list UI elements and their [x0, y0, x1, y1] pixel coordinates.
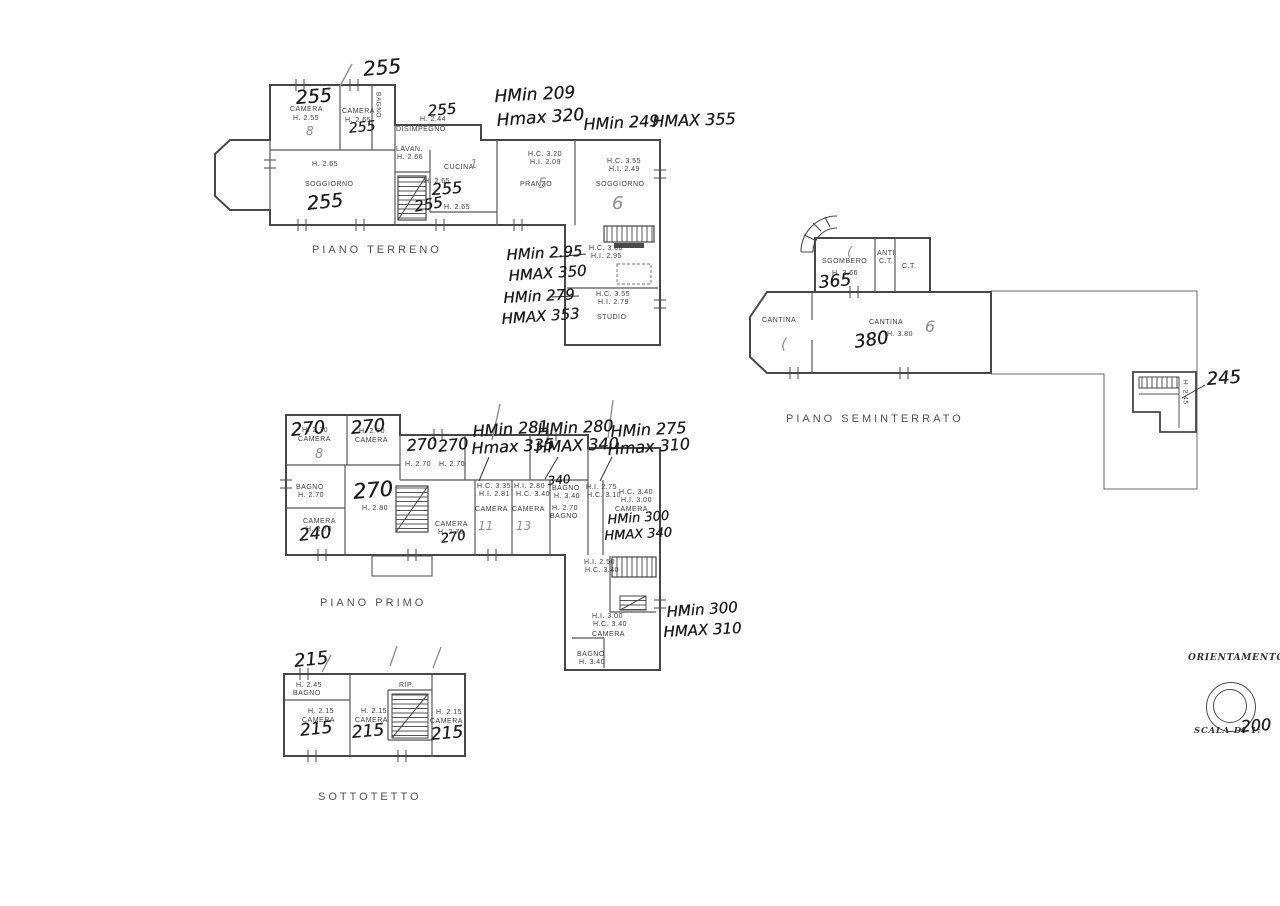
room-label: ANTI — [877, 250, 895, 258]
room-label: BAGNO — [293, 690, 321, 698]
handwritten-annotation: 215 — [299, 719, 333, 742]
room-label: C.T. — [879, 258, 893, 266]
handwritten-annotation: HMin 300 — [666, 599, 738, 621]
room-label: H.C. 3.55 — [596, 291, 630, 299]
room-label: H.I. 3.00 — [592, 613, 623, 621]
room-label: CANTINA — [869, 319, 903, 327]
handwritten-annotation: HMin 209 — [494, 84, 576, 108]
room-label: H. 3.40 — [579, 659, 605, 667]
room-label: CAMERA — [592, 631, 625, 639]
room-label: H.I. 2.95 — [591, 253, 622, 261]
handwritten-annotation: HMAX 350 — [508, 263, 587, 286]
room-label: H. 2.66 — [397, 154, 423, 162]
handwritten-annotation: HMAX 340 — [604, 526, 672, 544]
handwritten-annotation: 215 — [351, 721, 385, 743]
room-label: STUDIO — [597, 314, 626, 322]
room-label: C.T. — [902, 263, 916, 271]
room-label: H.I. 2.49 — [609, 166, 640, 174]
room-label: H.I. 2.09 — [530, 159, 561, 167]
room-label: H.C. 3.40 — [516, 491, 550, 499]
handwritten-annotation: 255 — [295, 85, 333, 109]
pencil-mark: 6 — [612, 194, 623, 215]
room-label: H. 2.70 — [405, 461, 431, 469]
handwritten-annotation: 215 — [430, 723, 464, 745]
room-label: H. 2.15 — [436, 709, 462, 717]
pencil-mark: 13 — [516, 520, 531, 534]
room-label: SOGGIORNO — [596, 181, 644, 189]
handwritten-annotation: 270 — [350, 416, 386, 440]
room-label: H.I. 2.80 — [514, 483, 545, 491]
handwritten-annotation: 240 — [298, 524, 332, 547]
room-label: H.I. 2.81 — [479, 491, 510, 499]
pencil-mark: ( — [847, 246, 852, 261]
room-label: H. 3.80 — [887, 331, 913, 339]
room-label: BAGNO — [550, 513, 578, 521]
handwritten-annotation: 255 — [306, 190, 344, 216]
room-label: H.C. 3.40 — [619, 489, 653, 497]
plan-title-piano-primo: PIANO PRIMO — [320, 597, 426, 610]
pencil-mark: 11 — [478, 520, 493, 534]
room-label: BAGNO — [577, 651, 605, 659]
handwritten-annotation: 270 — [440, 530, 467, 548]
handwritten-annotation: HMin 2.95 — [506, 243, 583, 264]
pencil-mark: 5 — [538, 176, 547, 192]
room-label: SOGGIORNO — [305, 181, 353, 189]
room-label: H.C. 3.55 — [607, 158, 641, 166]
handwritten-annotation: HMAX 353 — [501, 306, 580, 329]
handwritten-annotation: 270 — [290, 418, 326, 442]
room-label: H.C. 3.35 — [477, 483, 511, 491]
handwritten-annotation: HMin 279 — [503, 286, 575, 307]
room-label: H.C. 3.40 — [585, 567, 619, 575]
room-label: H. 2.70 — [552, 505, 578, 513]
room-label: H. 2.65 — [444, 204, 470, 212]
labels-layer: PIANO TERRENOCAMERAH. 2.55CAMERAH. 2.65B… — [0, 0, 1280, 906]
room-label: CANTINA — [762, 317, 796, 325]
room-label: H. 2.15 — [361, 708, 387, 716]
room-label: H. 2.80 — [362, 505, 388, 513]
room-label: H.I. 2.79 — [598, 299, 629, 307]
handwritten-annotation: HMAX 355 — [652, 110, 736, 131]
handwritten-annotation: 255 — [362, 55, 402, 81]
scanned-floor-plan-page: PIANO TERRENOCAMERAH. 2.55CAMERAH. 2.65B… — [0, 0, 1280, 906]
handwritten-annotation: Hmax 320 — [496, 106, 585, 132]
pencil-mark: ( — [781, 336, 787, 353]
room-label: BAGNO — [374, 92, 381, 118]
room-label: H.I. 2.75 — [586, 484, 617, 492]
pencil-mark: 8 — [306, 125, 314, 139]
room-label: CAMERA — [475, 506, 508, 514]
handwritten-annotation: 380 — [853, 328, 890, 353]
room-label: SGOMBERO — [822, 258, 867, 266]
room-label: H. 2.15 — [308, 708, 334, 716]
room-label: RIP. — [399, 682, 414, 690]
room-label: H. 2.55 — [293, 115, 319, 123]
handwritten-annotation: 215 — [293, 648, 329, 672]
room-label: BAGNO — [296, 484, 324, 492]
room-label: CAMERA — [512, 506, 545, 514]
handwritten-annotation: 270 — [352, 477, 394, 505]
room-label: H.C. 3.60 — [589, 245, 623, 253]
handwritten-annotation: HMAX 310 — [663, 620, 742, 641]
room-label: H. 3.40 — [554, 493, 580, 501]
pencil-mark: 6 — [925, 318, 935, 336]
room-label: H.I. 3.00 — [621, 497, 652, 505]
room-label: H. 2.65 — [312, 161, 338, 169]
plan-title-piano-terreno: PIANO TERRENO — [312, 244, 442, 257]
plan-title-sottotetto: SOTTOTETTO — [318, 791, 422, 804]
handwritten-annotation: 245 — [1206, 368, 1242, 391]
scale-value-handwritten: 200 — [1240, 716, 1272, 736]
handwritten-annotation: 340 — [547, 473, 571, 489]
room-label: H. 2.45 — [296, 682, 322, 690]
handwritten-annotation: Hmax 310 — [607, 435, 691, 459]
pencil-mark: 8 — [315, 448, 323, 463]
room-label: CAMERA — [342, 108, 375, 116]
handwritten-annotation: 255 — [427, 101, 457, 121]
room-label: H. 2.70 — [439, 461, 465, 469]
orientation-label: ORIENTAMENTO — [1188, 653, 1280, 663]
room-label: H.C. 3.40 — [593, 621, 627, 629]
room-label: LAVAN. — [396, 146, 423, 154]
room-label: PRANZO — [520, 181, 552, 189]
room-label: H.C. 3.10 — [587, 492, 621, 500]
room-label: H.C. 3.20 — [528, 151, 562, 159]
room-label: H. 2.45 — [1181, 380, 1188, 404]
handwritten-annotation: 270 — [437, 435, 469, 456]
handwritten-annotation: 255 — [348, 118, 376, 137]
pencil-mark: 1 — [470, 158, 478, 172]
room-label: H.I. 2.50 — [584, 559, 615, 567]
plan-title-piano-seminterrato: PIANO SEMINTERRATO — [786, 413, 964, 426]
room-label: H. 2.70 — [298, 492, 324, 500]
handwritten-annotation: 255 — [413, 194, 444, 216]
handwritten-annotation: 270 — [406, 435, 438, 455]
room-label: DISIMPEGNO — [396, 126, 446, 134]
handwritten-annotation: HMin 249 — [583, 112, 660, 134]
handwritten-annotation: 365 — [818, 271, 852, 293]
